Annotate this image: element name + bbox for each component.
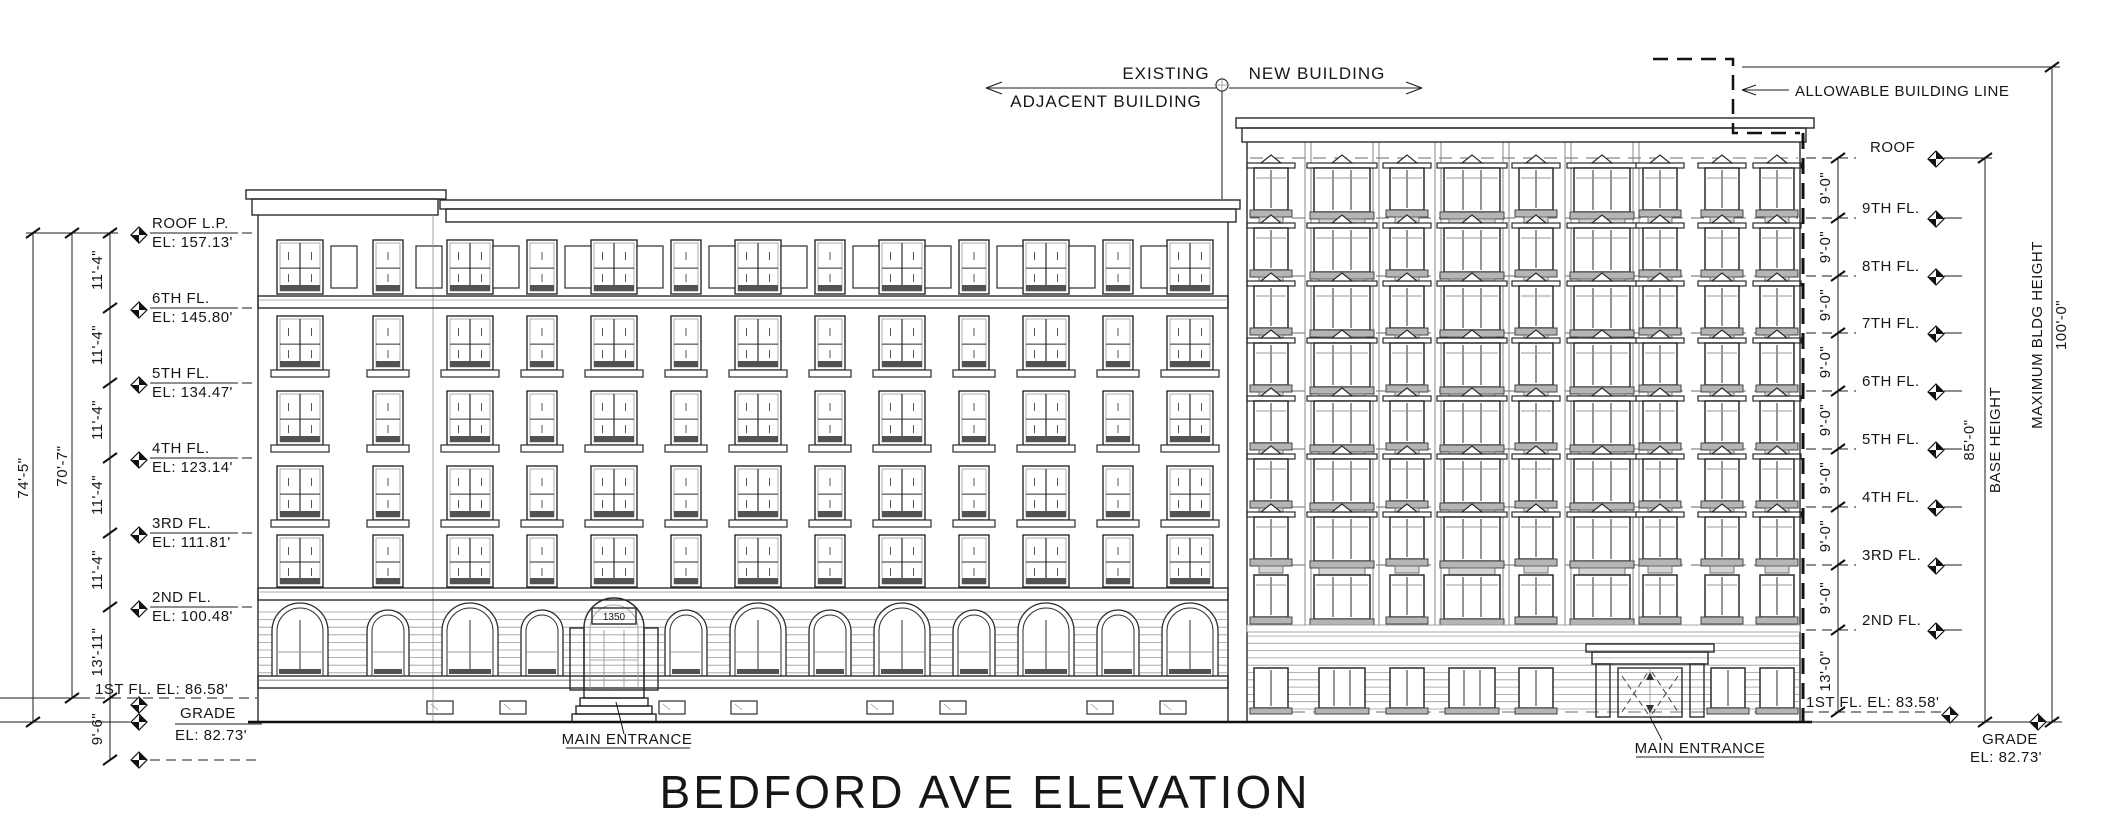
window	[373, 316, 403, 370]
window	[591, 466, 637, 520]
svg-text:EL: 82.73': EL: 82.73'	[1970, 749, 2042, 766]
allowable-building-line-label: ALLOWABLE BUILDING LINE	[1795, 83, 2009, 100]
drawing-title: BEDFORD AVE ELEVATION	[660, 766, 1311, 818]
basement-window	[659, 701, 685, 714]
basement-window	[731, 701, 757, 714]
dim-13-11: 13'-11"	[89, 628, 106, 677]
parapet-panel	[416, 246, 442, 288]
parapet-panel	[331, 246, 357, 288]
window	[1103, 240, 1133, 294]
left-entrance-label: MAIN ENTRANCE	[562, 731, 693, 748]
cellar-datum	[131, 752, 257, 768]
parapet-panel	[1141, 246, 1167, 288]
dim-74-5: 74'-5"	[15, 457, 32, 498]
svg-text:9TH FL.: 9TH FL.	[1862, 200, 1920, 217]
window	[735, 316, 781, 370]
ground-window	[1707, 668, 1749, 714]
svg-text:1ST FL. EL: 83.58': 1ST FL. EL: 83.58'	[1806, 694, 1939, 711]
window	[1310, 575, 1374, 626]
new-building-label: NEW BUILDING	[1249, 64, 1386, 83]
window	[1023, 391, 1069, 445]
left-level-labels: ROOF L.P.EL: 157.13' 6TH FL.EL: 145.80' …	[0, 215, 262, 768]
window	[1023, 316, 1069, 370]
window	[1753, 155, 1801, 224]
level-label-2nd: 2ND FL.EL: 100.48'	[131, 589, 257, 625]
window	[277, 391, 323, 445]
window	[735, 240, 781, 294]
max-height-label: MAXIMUM BLDG HEIGHT	[2029, 241, 2046, 429]
window	[815, 240, 845, 294]
window	[373, 535, 403, 587]
ground-window	[1315, 668, 1369, 714]
window	[1567, 504, 1637, 575]
window	[1383, 155, 1431, 224]
svg-text:EL: 157.13': EL: 157.13'	[152, 234, 233, 251]
level-label-2nd-r: 2ND FL.	[1806, 612, 1962, 639]
window	[815, 466, 845, 520]
window	[1167, 535, 1213, 587]
svg-text:2ND FL.: 2ND FL.	[1862, 612, 1921, 629]
window	[447, 316, 493, 370]
window	[671, 240, 701, 294]
window	[735, 535, 781, 587]
window	[447, 240, 493, 294]
window	[1698, 504, 1746, 573]
arched-window	[1018, 603, 1074, 676]
window	[1756, 575, 1798, 624]
window	[591, 240, 637, 294]
window	[671, 535, 701, 587]
base-height-value: 85'-0"	[1961, 419, 1978, 460]
window	[1512, 155, 1560, 224]
parapet-panel	[709, 246, 735, 288]
window	[1023, 466, 1069, 520]
svg-text:EL: 111.81': EL: 111.81'	[152, 534, 231, 551]
window	[1250, 575, 1292, 624]
svg-text:8TH FL.: 8TH FL.	[1862, 258, 1920, 275]
window	[1515, 575, 1557, 624]
svg-text:5TH FL.: 5TH FL.	[152, 365, 210, 382]
dim-11-4: 11'-4"	[89, 250, 106, 290]
window	[1636, 155, 1684, 224]
svg-text:9'-0": 9'-0"	[1817, 520, 1834, 552]
window	[815, 535, 845, 587]
arched-window	[1162, 603, 1218, 676]
window	[527, 391, 557, 445]
svg-text:4TH FL.: 4TH FL.	[152, 440, 210, 457]
window	[1570, 575, 1634, 626]
basement-window	[500, 701, 526, 714]
basement-window	[940, 701, 966, 714]
window	[591, 391, 637, 445]
level-label-4th: 4TH FL.EL: 123.14'	[131, 440, 257, 476]
svg-text:ROOF L.P.: ROOF L.P.	[152, 215, 229, 232]
max-height-value: 100'-0"	[2053, 300, 2070, 350]
existing-adjacent-label-line2: ADJACENT BUILDING	[1010, 92, 1201, 111]
window	[1103, 391, 1133, 445]
window	[1103, 466, 1133, 520]
ground-window	[1756, 668, 1798, 714]
window	[1103, 535, 1133, 587]
parapet-panel	[781, 246, 807, 288]
window	[1167, 240, 1213, 294]
window	[815, 316, 845, 370]
right-level-labels: ROOF 9TH FL. 8TH FL. 7TH FL. 6TH FL. 5TH…	[1803, 139, 2046, 766]
window	[959, 391, 989, 445]
arched-window	[809, 610, 851, 676]
window	[1023, 535, 1069, 587]
window	[591, 316, 637, 370]
parapet-panel	[637, 246, 663, 288]
svg-text:5TH FL.: 5TH FL.	[1862, 431, 1920, 448]
window	[527, 316, 557, 370]
svg-text:9'-0": 9'-0"	[1817, 462, 1834, 494]
ground-window	[1445, 668, 1499, 714]
elevation-drawing: 1350 MAIN ENTRANCE MAIN ENTRANCE	[0, 0, 2108, 838]
window	[527, 240, 557, 294]
address-sign: 1350	[603, 612, 626, 623]
svg-text:11'-4": 11'-4"	[89, 550, 106, 590]
drawing-canvas: 1350 MAIN ENTRANCE MAIN ENTRANCE	[0, 0, 2108, 838]
window	[1383, 504, 1431, 573]
window	[1437, 504, 1507, 575]
arched-window	[367, 610, 409, 676]
right-entrance-label: MAIN ENTRANCE	[1635, 740, 1766, 757]
level-label-1st-r: 1ST FL. EL: 83.58'	[1803, 694, 1958, 723]
arched-window	[442, 603, 498, 676]
svg-text:9'-0": 9'-0"	[1817, 582, 1834, 614]
svg-text:ROOF: ROOF	[1870, 139, 1915, 156]
parapet-panel	[493, 246, 519, 288]
svg-text:EL: 100.48': EL: 100.48'	[152, 608, 233, 625]
svg-text:EL: 123.14': EL: 123.14'	[152, 459, 233, 476]
svg-text:6TH FL.: 6TH FL.	[1862, 373, 1920, 390]
basement-window	[867, 701, 893, 714]
svg-text:11'-4": 11'-4"	[89, 325, 106, 365]
svg-text:EL: 134.47': EL: 134.47'	[152, 384, 233, 401]
parapet-panel	[925, 246, 951, 288]
window	[527, 466, 557, 520]
svg-text:6TH FL.: 6TH FL.	[152, 290, 210, 307]
window	[1247, 504, 1295, 573]
svg-text:9'-0": 9'-0"	[1817, 231, 1834, 263]
window	[1386, 575, 1428, 624]
window	[1753, 504, 1801, 573]
svg-text:2ND FL.: 2ND FL.	[152, 589, 211, 606]
window	[373, 466, 403, 520]
level-label-5th: 5TH FL.EL: 134.47'	[131, 365, 257, 401]
window	[1512, 504, 1560, 573]
window	[1698, 155, 1746, 224]
window	[671, 316, 701, 370]
window	[671, 466, 701, 520]
window	[1307, 504, 1377, 575]
arched-window	[730, 603, 786, 676]
window	[1167, 391, 1213, 445]
arched-window	[1097, 610, 1139, 676]
svg-text:EL: 82.73': EL: 82.73'	[175, 727, 247, 744]
window	[447, 391, 493, 445]
ground-window	[1250, 668, 1292, 714]
window	[671, 391, 701, 445]
window	[959, 466, 989, 520]
dim-9-6: 9'-6"	[89, 713, 106, 745]
svg-text:3RD FL.: 3RD FL.	[152, 515, 211, 532]
window	[879, 391, 925, 445]
svg-text:11'-4": 11'-4"	[89, 400, 106, 440]
arched-window	[874, 603, 930, 676]
window	[373, 391, 403, 445]
window	[1103, 316, 1133, 370]
window	[373, 240, 403, 294]
window	[447, 466, 493, 520]
svg-text:11'-4": 11'-4"	[89, 475, 106, 515]
svg-text:7TH FL.: 7TH FL.	[1862, 315, 1920, 332]
arched-window	[665, 610, 707, 676]
window	[879, 316, 925, 370]
window	[527, 535, 557, 587]
window	[1247, 155, 1295, 224]
window	[1636, 504, 1684, 573]
arched-window	[521, 610, 563, 676]
svg-text:9'-0": 9'-0"	[1817, 289, 1834, 321]
parapet-panel	[565, 246, 591, 288]
window	[1440, 575, 1504, 626]
window	[735, 391, 781, 445]
window	[959, 316, 989, 370]
window	[1167, 466, 1213, 520]
window	[815, 391, 845, 445]
existing-adjacent-label-line1: EXISTING	[1122, 64, 1209, 83]
window	[1023, 240, 1069, 294]
parapet-panel	[853, 246, 879, 288]
svg-text:1ST FL. EL: 86.58': 1ST FL. EL: 86.58'	[95, 681, 228, 698]
window	[879, 535, 925, 587]
window	[591, 535, 637, 587]
ground-window	[1386, 668, 1428, 714]
svg-text:9'-0": 9'-0"	[1817, 404, 1834, 436]
dim-13-0: 13'-0"	[1817, 650, 1834, 691]
ground-window	[1515, 668, 1557, 714]
svg-text:GRADE: GRADE	[180, 705, 236, 722]
window	[277, 535, 323, 587]
window	[277, 466, 323, 520]
window	[1167, 316, 1213, 370]
basement-window	[1087, 701, 1113, 714]
window	[1701, 575, 1743, 624]
svg-text:EL: 145.80': EL: 145.80'	[152, 309, 233, 326]
arched-window	[953, 610, 995, 676]
window	[879, 240, 925, 294]
window	[1639, 575, 1681, 624]
level-label-6th: 6TH FL.EL: 145.80'	[131, 290, 257, 326]
level-label-3rd: 3RD FL.EL: 111.81'	[131, 515, 257, 551]
svg-text:GRADE: GRADE	[1982, 731, 2038, 748]
window	[277, 240, 323, 294]
window	[959, 240, 989, 294]
window	[959, 535, 989, 587]
base-height-label: BASE HEIGHT	[1987, 387, 2004, 493]
svg-text:3RD FL.: 3RD FL.	[1862, 547, 1921, 564]
arched-window	[272, 603, 328, 676]
parapet-panel	[997, 246, 1023, 288]
level-label-roof: ROOF L.P.EL: 157.13'	[131, 215, 257, 251]
svg-text:4TH FL.: 4TH FL.	[1862, 489, 1920, 506]
svg-text:9'-0": 9'-0"	[1817, 346, 1834, 378]
dim-70-7: 70'-7"	[54, 445, 71, 486]
window	[879, 466, 925, 520]
window	[277, 316, 323, 370]
basement-window	[427, 701, 453, 714]
dim-9-0: 9'-0"	[1817, 172, 1834, 204]
parapet-panel	[1069, 246, 1095, 288]
level-label-grade: GRADEEL: 82.73'	[0, 705, 262, 744]
window	[735, 466, 781, 520]
basement-window	[1160, 701, 1186, 714]
window	[447, 535, 493, 587]
